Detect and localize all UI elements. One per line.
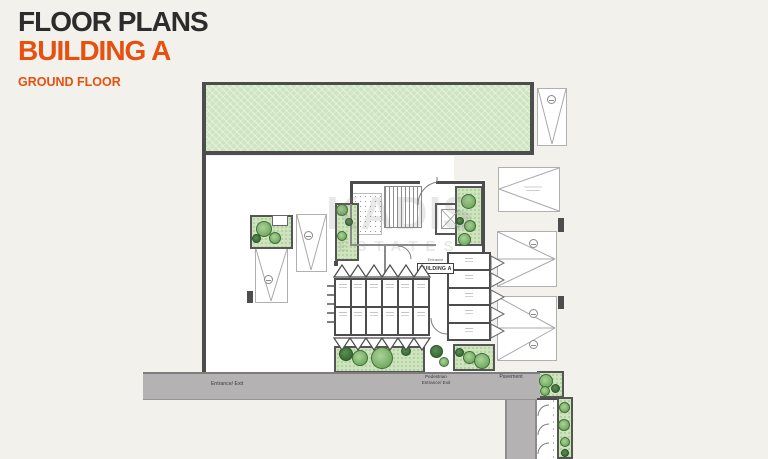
parking-marker-icon [547,95,556,104]
parking-marker-icon [529,239,538,248]
parking-marker-icon [304,231,313,240]
wall-ticks [327,286,334,322]
door-arc-icon [398,177,549,454]
parking-marker-icon [264,275,273,284]
parking-marker-icon [529,340,538,349]
floor-plan-page: FLOOR PLANS BUILDING A GROUND FLOOR [0,0,768,459]
storage-door-zigzag [334,265,430,350]
elevator-cross [442,210,459,228]
parking-markings [256,89,566,360]
door-swing-icon [491,256,504,338]
parking-marker-icon [529,309,538,318]
plan-linework [0,0,768,459]
